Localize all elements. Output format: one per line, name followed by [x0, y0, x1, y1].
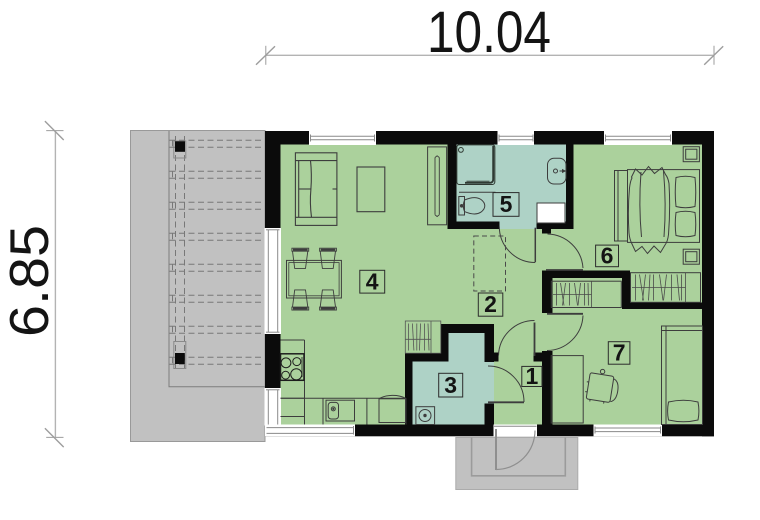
- svg-text:4: 4: [366, 268, 379, 294]
- svg-text:2: 2: [484, 291, 497, 317]
- svg-text:6.85: 6.85: [0, 225, 60, 337]
- svg-text:1: 1: [526, 363, 539, 389]
- svg-text:5: 5: [500, 191, 513, 217]
- svg-text:3: 3: [444, 372, 457, 398]
- svg-text:6: 6: [601, 243, 614, 269]
- svg-text:7: 7: [613, 340, 626, 366]
- svg-text:10.04: 10.04: [427, 0, 551, 65]
